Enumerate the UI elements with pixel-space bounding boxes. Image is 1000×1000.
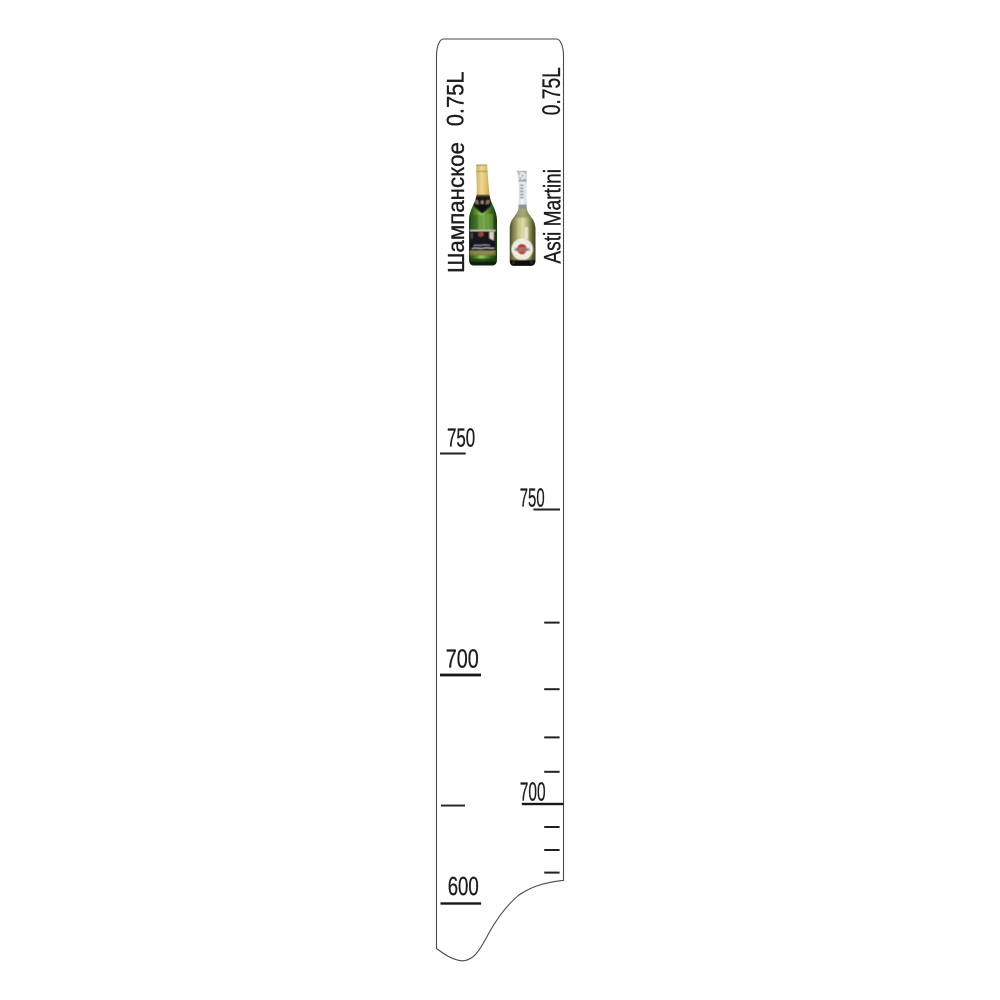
svg-text:700: 700 bbox=[446, 644, 479, 673]
svg-text:0.75L: 0.75L bbox=[538, 67, 566, 115]
svg-text:700: 700 bbox=[520, 777, 546, 806]
svg-text:0.75L: 0.75L bbox=[442, 71, 469, 126]
svg-text:600: 600 bbox=[448, 872, 479, 901]
svg-text:MARTINI: MARTINI bbox=[515, 246, 530, 252]
svg-text:Asti Martini: Asti Martini bbox=[538, 169, 566, 264]
svg-text:Шампанское: Шампанское bbox=[443, 142, 469, 273]
svg-text:750: 750 bbox=[447, 423, 475, 453]
